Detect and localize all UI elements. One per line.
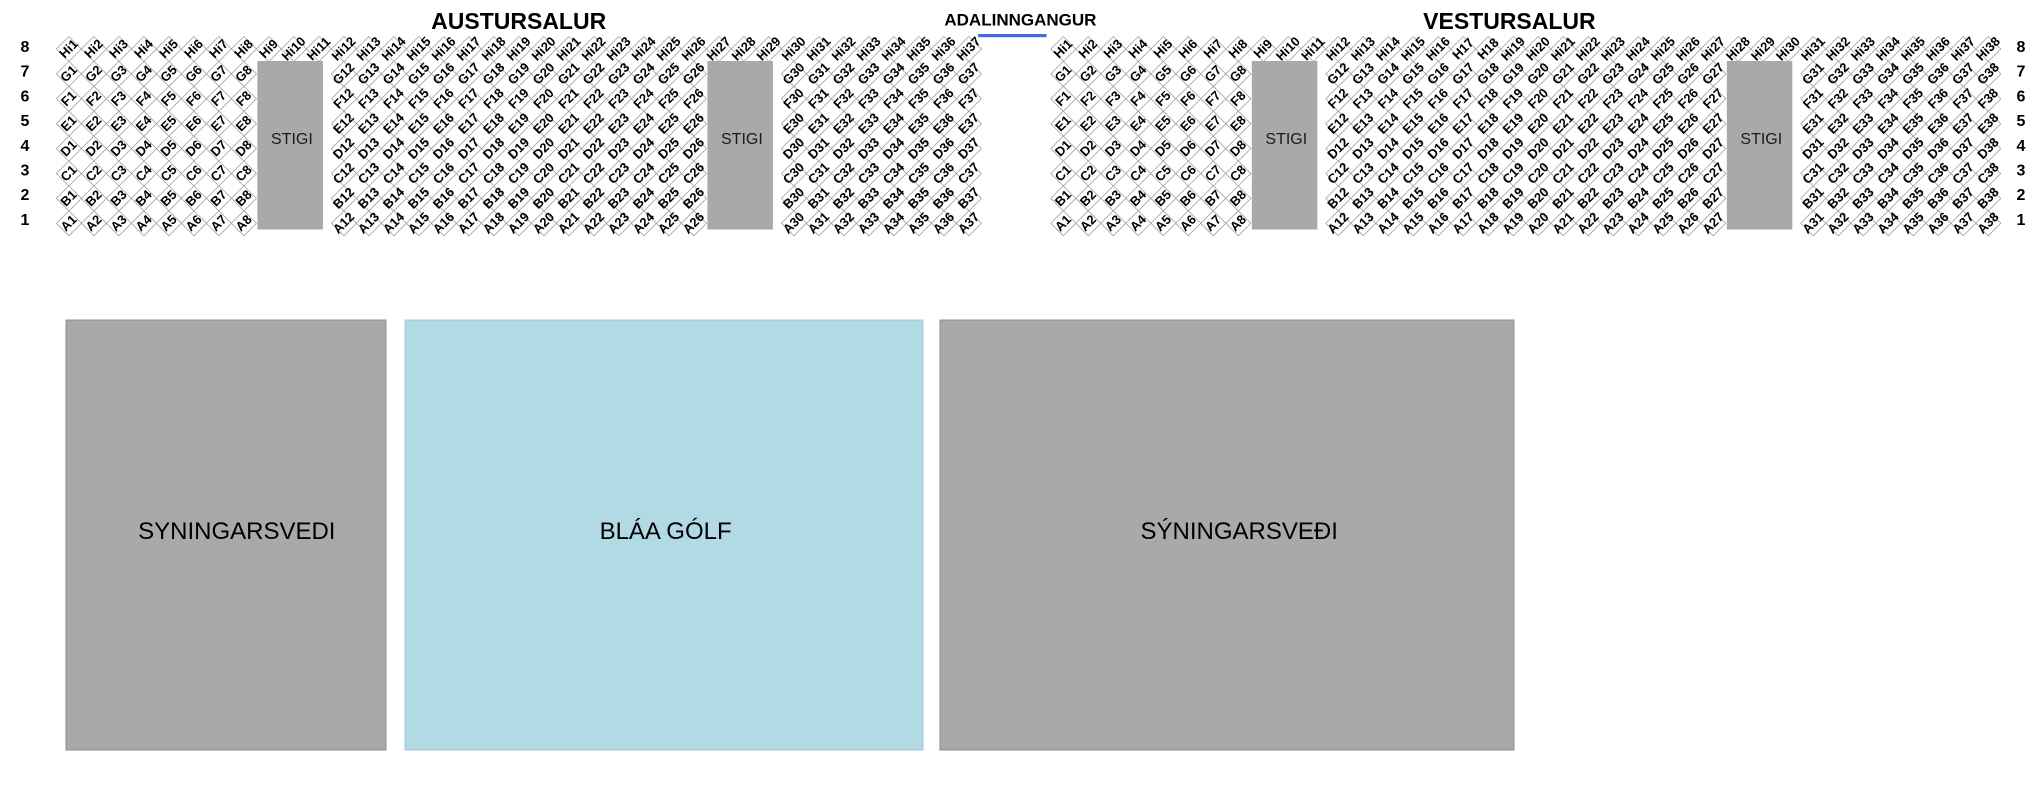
svg-text:STIGI: STIGI xyxy=(1265,131,1307,148)
svg-text:7: 7 xyxy=(2017,64,2026,81)
svg-text:VESTURSALUR: VESTURSALUR xyxy=(1423,8,1596,34)
svg-text:4: 4 xyxy=(21,138,30,155)
svg-text:STIGI: STIGI xyxy=(721,131,763,148)
svg-text:1: 1 xyxy=(2017,212,2026,229)
svg-text:AUSTURSALUR: AUSTURSALUR xyxy=(431,8,606,34)
svg-text:5: 5 xyxy=(21,113,30,130)
svg-text:8: 8 xyxy=(21,39,30,56)
svg-text:4: 4 xyxy=(2017,138,2026,155)
svg-text:SÝNINGARSVEÐI: SÝNINGARSVEÐI xyxy=(1141,518,1338,545)
svg-text:BLÁA GÓLF: BLÁA GÓLF xyxy=(600,518,732,545)
svg-text:2: 2 xyxy=(2017,187,2026,204)
svg-text:6: 6 xyxy=(21,88,30,105)
svg-text:ADALINNGANGUR: ADALINNGANGUR xyxy=(944,11,1096,30)
svg-text:SYNINGARSVEDI: SYNINGARSVEDI xyxy=(138,518,335,545)
svg-text:1: 1 xyxy=(21,212,30,229)
svg-text:8: 8 xyxy=(2017,39,2026,56)
svg-text:6: 6 xyxy=(2017,88,2026,105)
svg-text:5: 5 xyxy=(2017,113,2026,130)
svg-text:2: 2 xyxy=(21,187,30,204)
svg-text:STIGI: STIGI xyxy=(1740,131,1782,148)
svg-text:3: 3 xyxy=(2017,163,2026,180)
svg-text:STIGI: STIGI xyxy=(271,131,313,148)
svg-text:7: 7 xyxy=(21,64,30,81)
svg-text:3: 3 xyxy=(21,163,30,180)
